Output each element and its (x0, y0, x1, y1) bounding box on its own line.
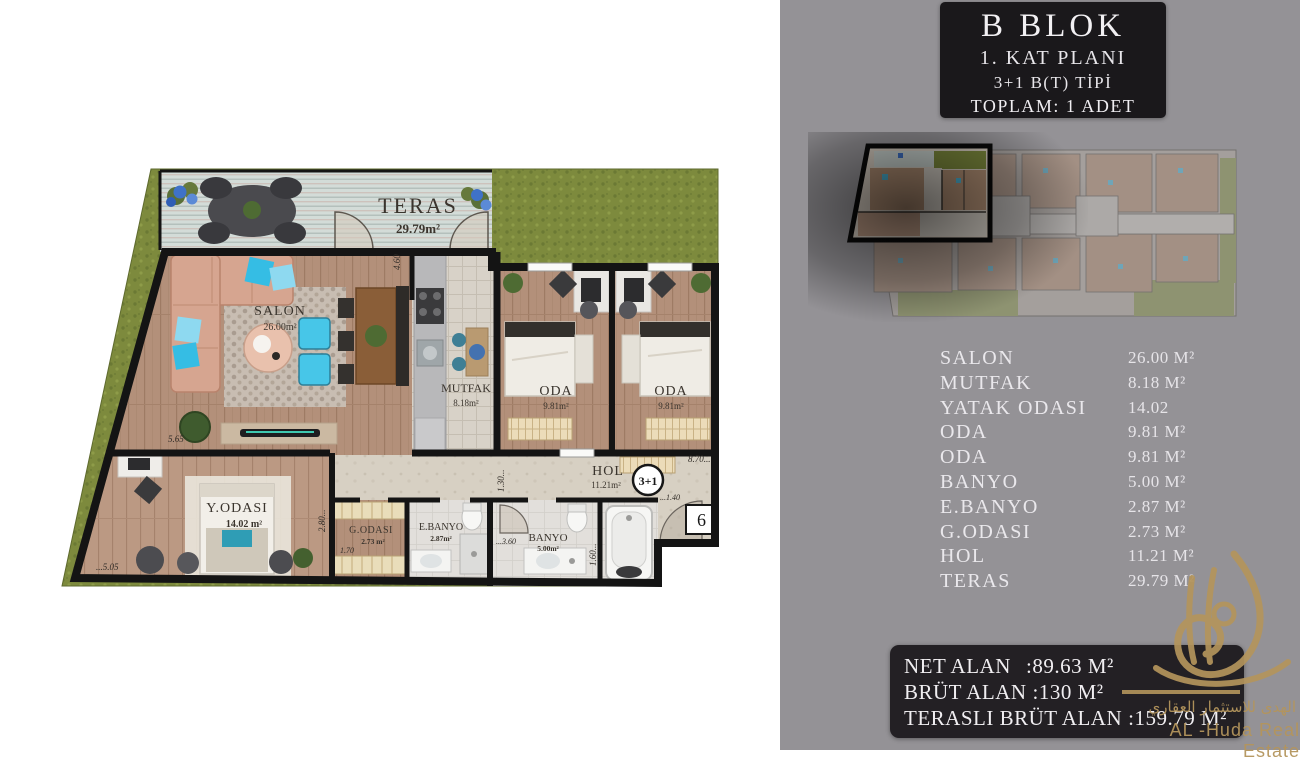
gross-area-line: BRÜT ALAN:130 M² (904, 679, 1244, 705)
screenshot-root: TERAS 29.79m² (0, 0, 1300, 750)
room-row: TERAS29.79 M² (940, 569, 1270, 594)
terrace: TERAS 29.79m² (160, 171, 492, 252)
room-row: MUTFAK8.18 M² (940, 371, 1270, 396)
type-badge-text: 3+1 (639, 474, 658, 488)
svg-text:1.30...: 1.30... (496, 470, 506, 493)
salon-label: SALON (254, 304, 306, 319)
floorplan-canvas: TERAS 29.79m² (0, 0, 780, 750)
svg-text:1.70: 1.70 (340, 546, 354, 555)
room-row: YATAK ODASI14.02 (940, 396, 1270, 421)
oda2-label: ODA (654, 384, 687, 399)
hol-label: HOL (592, 464, 624, 479)
svg-text:...5.05: ...5.05 (96, 562, 119, 572)
oda2-area: 9.81m² (658, 401, 684, 411)
oda1-area: 9.81m² (543, 401, 569, 411)
tv-console (221, 423, 337, 444)
room-row: HOL11.21 M² (940, 544, 1270, 569)
svg-text:2.80...: 2.80... (317, 510, 327, 533)
svg-text:1.60...: 1.60... (588, 544, 598, 567)
kitchen-area: 8.18m² (453, 398, 479, 408)
area-summary-box: NET ALAN:89.63 M² BRÜT ALAN:130 M² TERAS… (890, 645, 1244, 738)
block-header: B BLOK 1. KAT PLANI 3+1 B(T) TİPİ TOPLAM… (940, 2, 1166, 118)
svg-text:...1.40: ...1.40 (660, 493, 680, 502)
floor-plan-subtitle: 1. KAT PLANI (940, 47, 1166, 70)
room-row: G.ODASI2.73 M² (940, 520, 1270, 545)
block-title: B BLOK (940, 8, 1166, 45)
dining-set (338, 286, 409, 386)
info-panel: B BLOK 1. KAT PLANI 3+1 B(T) TİPİ TOPLAM… (780, 0, 1300, 750)
banyo-area: 5.00m² (537, 544, 559, 553)
unit-number: 6 (697, 510, 706, 530)
salon-area: 26.00m² (263, 322, 296, 333)
overview-shadow (808, 132, 1088, 322)
svg-text:8.70...: 8.70... (688, 454, 711, 464)
ebanyo-label: E.BANYO (419, 522, 463, 533)
terrace-label: TERAS (378, 193, 458, 218)
hol-area: 11.21m² (591, 480, 621, 490)
terrace-area: 29.79m² (396, 221, 440, 236)
unit-type-subtitle: 3+1 B(T) TİPİ (940, 73, 1166, 93)
room-row: SALON26.00 M² (940, 346, 1270, 371)
godasi-label: G.ODASI (349, 525, 393, 536)
oda1-label: ODA (539, 384, 572, 399)
bathtub-room (606, 506, 652, 580)
terrace-table-set (198, 177, 306, 244)
salon-plant (180, 412, 210, 442)
kitchen-label: MUTFAK (441, 381, 491, 395)
room-area-list: SALON26.00 M² MUTFAK8.18 M² YATAK ODASI1… (940, 346, 1270, 594)
room-row: ODA9.81 M² (940, 420, 1270, 445)
floor-overview (838, 138, 1252, 338)
yodasi-label: Y.ODASI (206, 501, 268, 516)
terrace-gross-area-line: TERASLI BRÜT ALAN:159.79 M² (904, 705, 1244, 731)
svg-text:5.65: 5.65 (168, 434, 184, 444)
svg-text:4.60: 4.60 (392, 254, 402, 270)
room-row: BANYO5.00 M² (940, 470, 1270, 495)
room-row: E.BANYO2.87 M² (940, 495, 1270, 520)
godasi-area: 2.73 m² (361, 537, 385, 546)
ebanyo-area: 2.87m² (430, 534, 452, 543)
svg-text:...3.60: ...3.60 (496, 537, 516, 546)
yodasi-area: 14.02 m² (226, 519, 262, 530)
total-units-subtitle: TOPLAM: 1 ADET (940, 96, 1166, 117)
room-row: ODA9.81 M² (940, 445, 1270, 470)
net-area-line: NET ALAN:89.63 M² (904, 653, 1244, 679)
banyo-label: BANYO (528, 532, 567, 544)
